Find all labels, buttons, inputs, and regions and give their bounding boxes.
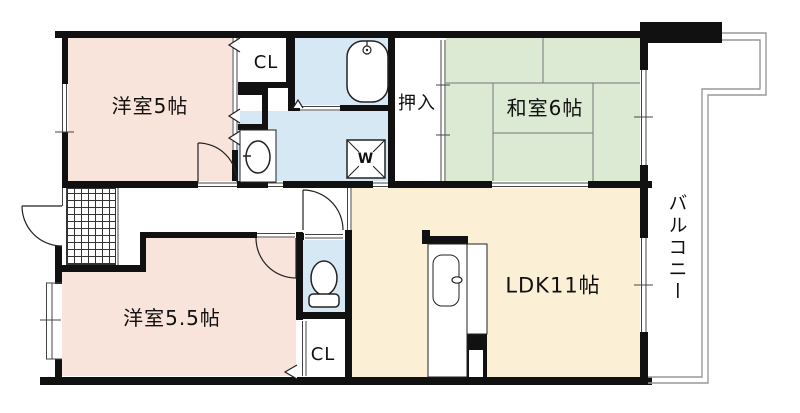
floor-plan: 洋室5帖 CL 押入 和室6帖 W 洋室5.5帖 CL LDK11帖 バルコニー (0, 0, 800, 413)
toilet (309, 261, 339, 307)
room-label-ldk: LDK11帖 (505, 276, 600, 297)
washer-label: W (358, 152, 374, 166)
vanity-sink (240, 130, 276, 182)
bathtub (347, 41, 388, 102)
room-label-western5: 洋室5帖 (112, 96, 189, 116)
closet-label-bottom: CL (311, 346, 336, 364)
kitchen-counter (428, 244, 487, 377)
room-label-western55: 洋室5.5帖 (123, 308, 221, 328)
door-swings (22, 143, 343, 278)
balcony-label: バルコニー (667, 193, 686, 303)
closet-label-top: CL (254, 54, 279, 72)
folding-door-chevrons (229, 38, 303, 379)
oshiire-label: 押入 (398, 95, 436, 113)
room-label-japanese6: 和室6帖 (507, 98, 584, 118)
